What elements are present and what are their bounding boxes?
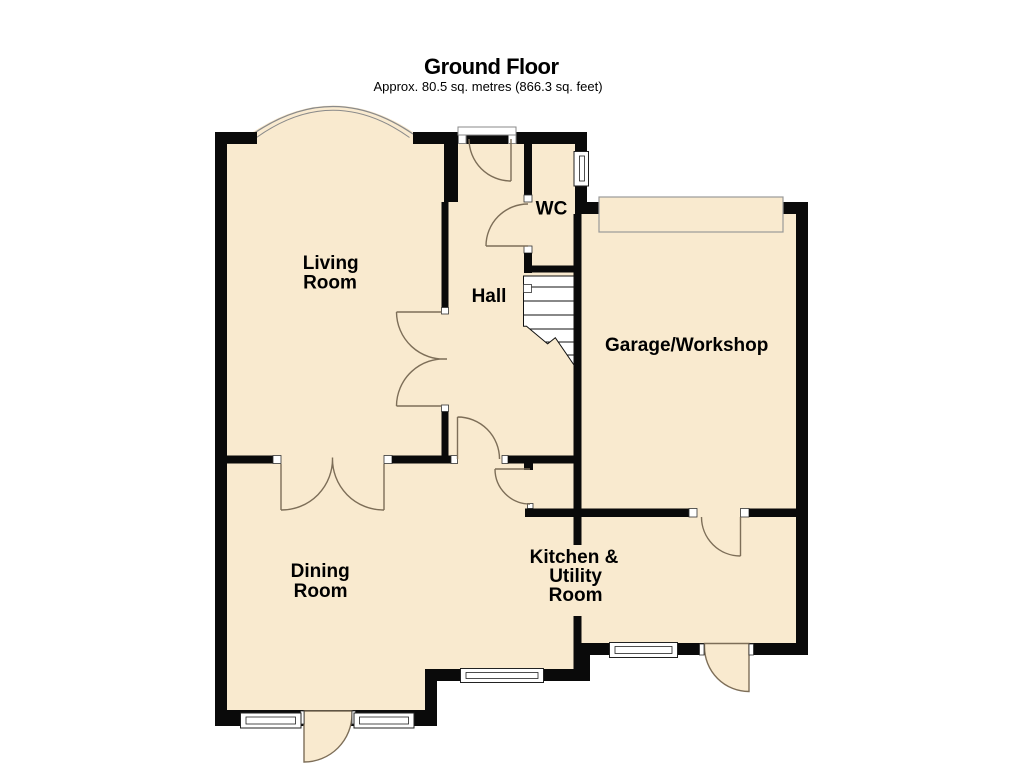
svg-text:Utility: Utility: [549, 566, 602, 587]
svg-text:Room: Room: [303, 273, 357, 294]
svg-text:Kitchen &: Kitchen &: [530, 547, 619, 568]
svg-text:Room: Room: [549, 585, 603, 606]
svg-text:WC: WC: [536, 199, 568, 220]
svg-text:Ground Floor: Ground Floor: [424, 54, 559, 79]
svg-text:Dining: Dining: [291, 561, 350, 582]
svg-text:Living: Living: [303, 253, 359, 274]
svg-text:Approx. 80.5 sq. metres (866.3: Approx. 80.5 sq. metres (866.3 sq. feet): [373, 79, 602, 94]
svg-text:Garage/Workshop: Garage/Workshop: [605, 335, 768, 356]
svg-text:Hall: Hall: [472, 286, 507, 307]
svg-text:Room: Room: [294, 581, 348, 602]
